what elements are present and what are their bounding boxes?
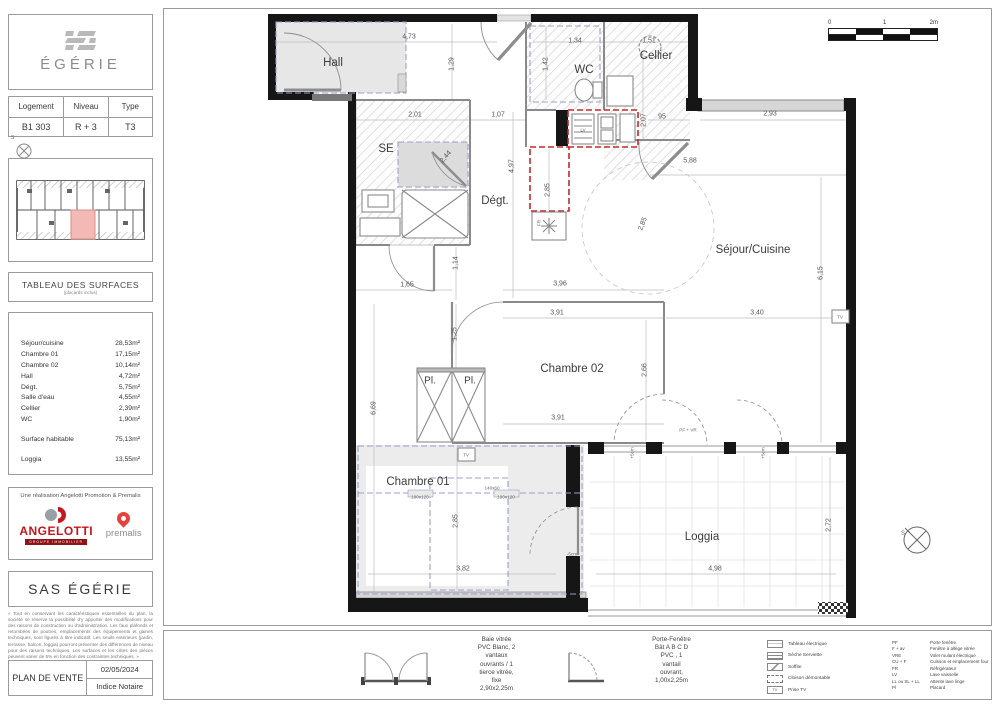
loggia-tiles — [590, 456, 844, 607]
scale-1: 1 — [883, 20, 886, 26]
window-lines — [588, 446, 856, 616]
compass-south-label: S — [901, 531, 905, 537]
floor-plan-drawing — [0, 0, 1000, 706]
plan-de-vente-sheet: ÉGÉRIE Logement Niveau Type B1 303 R + 3… — [0, 0, 1000, 706]
scale-0: 0 — [828, 20, 831, 26]
scale-bar: 0 1 2m — [828, 20, 938, 41]
scale-2m: 2m — [930, 20, 938, 26]
compass-icon — [904, 527, 930, 553]
